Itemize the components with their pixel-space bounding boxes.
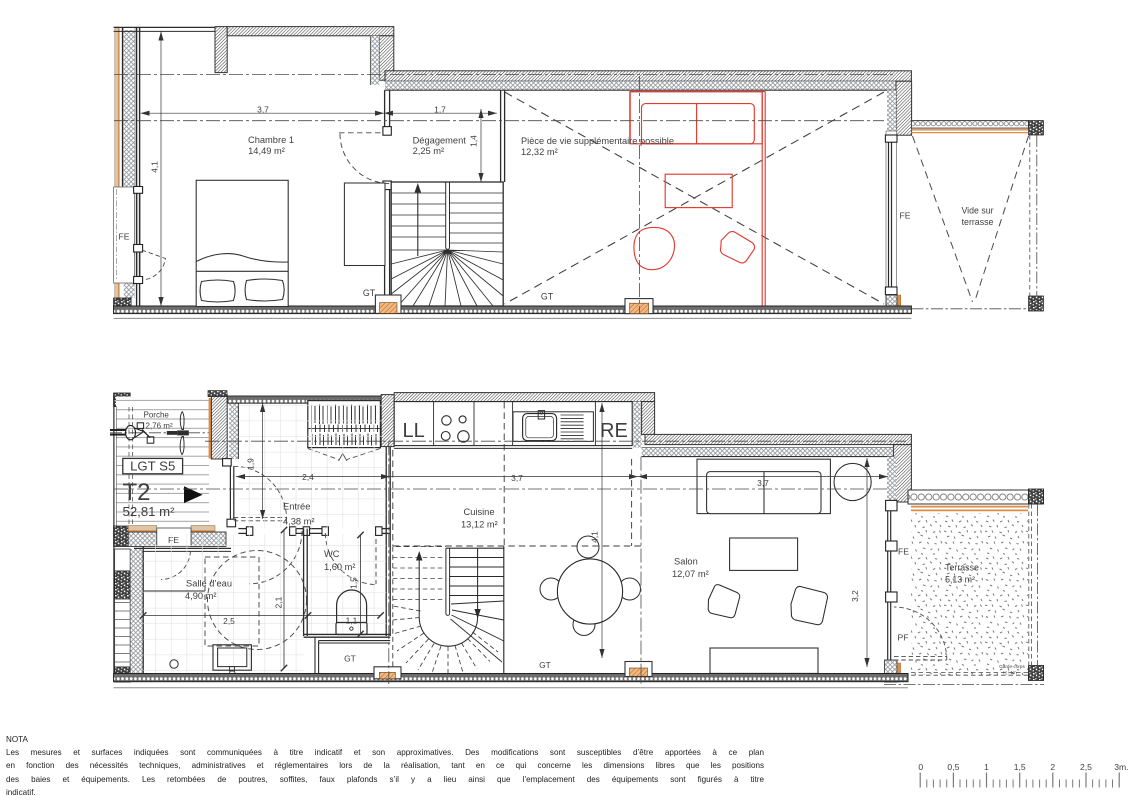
svg-text:1,9: 1,9: [245, 458, 255, 470]
svg-text:4,38 m²: 4,38 m²: [283, 517, 315, 527]
svg-text:4,1: 4,1: [590, 531, 600, 543]
svg-text:PF: PF: [898, 633, 909, 643]
svg-text:2,1: 2,1: [273, 596, 283, 608]
svg-text:1,7: 1,7: [434, 104, 446, 114]
svg-text:1,5: 1,5: [349, 577, 359, 589]
svg-text:Pièce de vie supplémentaire po: Pièce de vie supplémentaire possible: [521, 136, 674, 146]
svg-text:GT: GT: [344, 654, 356, 664]
svg-text:GT: GT: [539, 660, 551, 670]
svg-text:Terrasse: Terrasse: [945, 563, 979, 573]
svg-text:LL: LL: [403, 420, 425, 442]
svg-text:3,2: 3,2: [850, 590, 860, 602]
svg-text:GT: GT: [363, 288, 376, 298]
svg-text:4,90 m²: 4,90 m²: [185, 591, 217, 601]
svg-text:2,5: 2,5: [223, 616, 235, 626]
svg-text:LGT S5: LGT S5: [130, 459, 175, 474]
svg-text:Vide sur: Vide sur: [961, 206, 993, 216]
svg-text:Salon: Salon: [674, 557, 698, 567]
svg-text:RE: RE: [600, 420, 628, 442]
svg-text:1,5: 1,5: [1014, 762, 1026, 772]
svg-text:0: 0: [918, 762, 923, 772]
svg-text:2,25 m²: 2,25 m²: [413, 146, 445, 156]
svg-text:Salle d’eau: Salle d’eau: [186, 579, 232, 589]
svg-text:52,81 m²: 52,81 m²: [123, 504, 176, 519]
svg-text:terrasse: terrasse: [962, 217, 994, 227]
svg-text:Porche: Porche: [144, 410, 170, 419]
svg-text:Garde-corps: Garde-corps: [999, 664, 1025, 669]
svg-text:Chambre 1: Chambre 1: [248, 135, 294, 145]
svg-text:3,7: 3,7: [257, 104, 269, 114]
svg-text:13,12 m²: 13,12 m²: [461, 520, 498, 530]
svg-text:0,5: 0,5: [947, 762, 959, 772]
svg-text:FE: FE: [900, 211, 911, 221]
svg-text:3m.: 3m.: [1114, 762, 1128, 772]
svg-text:5,13 m²: 5,13 m²: [945, 575, 975, 585]
svg-text:1: 1: [984, 762, 989, 772]
svg-text:1,60 m²: 1,60 m²: [324, 562, 356, 572]
svg-text:12,07 m²: 12,07 m²: [672, 569, 709, 579]
svg-text:4,1: 4,1: [150, 161, 160, 173]
svg-text:1,4: 1,4: [469, 135, 479, 147]
svg-text:Cuisine: Cuisine: [464, 507, 495, 517]
svg-text:H : 1m: H : 1m: [1003, 670, 1017, 675]
svg-text:3,7: 3,7: [511, 473, 523, 483]
svg-text:FE: FE: [898, 547, 909, 557]
svg-text:2,76 m²: 2,76 m²: [146, 421, 173, 430]
svg-text:GT: GT: [541, 292, 554, 302]
svg-text:14,49 m²: 14,49 m²: [248, 146, 285, 156]
svg-text:12,32 m²: 12,32 m²: [521, 147, 558, 157]
svg-text:2,4: 2,4: [302, 472, 314, 482]
svg-text:1,1: 1,1: [346, 615, 358, 625]
svg-text:WC: WC: [324, 549, 340, 559]
svg-text:3,7: 3,7: [757, 478, 769, 488]
svg-text:Dégagement: Dégagement: [413, 135, 467, 145]
svg-text:2: 2: [1050, 762, 1055, 772]
svg-text:Entrée: Entrée: [283, 502, 310, 512]
svg-text:2,5: 2,5: [1080, 762, 1092, 772]
svg-text:FE: FE: [119, 232, 130, 242]
svg-text:T2: T2: [123, 479, 151, 506]
